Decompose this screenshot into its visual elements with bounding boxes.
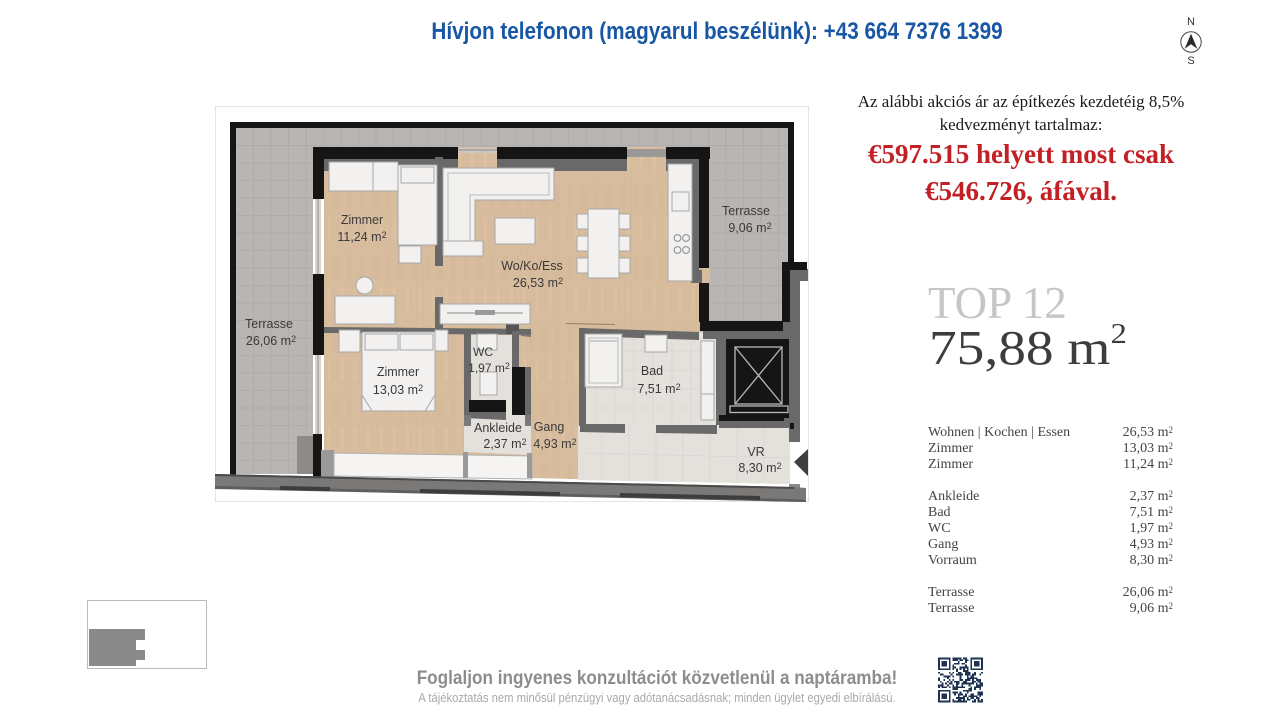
svg-text:Gang: Gang [534, 420, 565, 434]
svg-text:13,03 m2: 13,03 m2 [373, 383, 423, 397]
svg-text:2,37 m2: 2,37 m2 [483, 437, 526, 451]
svg-text:9,06 m2: 9,06 m2 [728, 221, 771, 235]
svg-text:11,24 m2: 11,24 m2 [337, 230, 386, 244]
svg-text:VR: VR [747, 445, 764, 459]
svg-text:Ankleide: Ankleide [474, 421, 522, 435]
svg-text:WC: WC [473, 345, 493, 359]
svg-text:26,53 m2: 26,53 m2 [513, 276, 563, 290]
svg-text:Bad: Bad [641, 364, 663, 378]
svg-text:26,06 m2: 26,06 m2 [246, 334, 296, 348]
svg-text:Zimmer: Zimmer [341, 213, 383, 227]
svg-text:8,30 m2: 8,30 m2 [738, 461, 781, 475]
svg-text:Terrasse: Terrasse [722, 204, 770, 218]
svg-text:1,97 m2: 1,97 m2 [468, 361, 510, 375]
svg-text:Zimmer: Zimmer [377, 365, 419, 379]
svg-text:7,51 m2: 7,51 m2 [637, 382, 680, 396]
svg-text:Wo/Ko/Ess: Wo/Ko/Ess [501, 259, 563, 273]
svg-text:4,93 m2: 4,93 m2 [533, 437, 576, 451]
svg-text:Terrasse: Terrasse [245, 317, 293, 331]
